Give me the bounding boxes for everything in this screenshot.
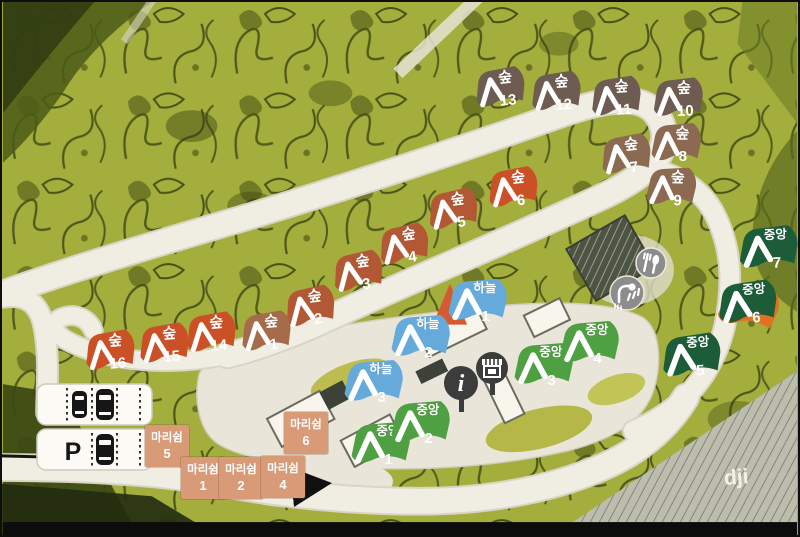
tent-site-forest-12: 숲12	[525, 70, 584, 118]
site-number: 8	[667, 149, 698, 164]
tent-site-forest-13: 숲13	[468, 65, 528, 115]
dji-watermark: dji	[723, 465, 749, 491]
parking-row-top	[37, 384, 152, 425]
tent-site-central-2: 중앙2	[385, 401, 451, 449]
site-zone-label: 숲	[664, 126, 701, 141]
site-number: 12	[548, 96, 580, 113]
car-top-view-icon	[96, 434, 114, 465]
rect-site-mari-2: 마리쉼2	[219, 457, 263, 499]
tent-site-forest-9: 숲9	[640, 166, 698, 212]
site-number: 2	[410, 345, 447, 360]
site-number: 6	[284, 434, 328, 447]
rect-site-mari-4: 마리쉼4	[261, 456, 305, 498]
site-zone-label: 하늘	[359, 363, 403, 376]
tent-site-sky-1: 하늘1	[442, 279, 508, 327]
site-zone-label: 중앙	[753, 228, 797, 242]
site-number: 3	[533, 373, 570, 388]
site-zone-label: 숲	[150, 324, 188, 342]
parking-p-label: P	[65, 438, 82, 466]
tent-site-forest-8: 숲8	[646, 123, 702, 167]
site-number: 4	[579, 351, 616, 366]
tent-site-forest-10: 숲10	[647, 77, 705, 123]
site-number: 14	[203, 337, 236, 355]
tent-site-forest-15: 숲15	[132, 322, 192, 371]
site-zone-label: 숲	[659, 169, 696, 185]
site-number: 1	[370, 452, 407, 467]
tent-site-central-4: 중앙4	[554, 321, 620, 369]
site-zone-label: 숲	[252, 312, 290, 330]
tent-site-forest-1: 숲1	[234, 310, 294, 359]
site-zone-label: 마리쉼	[145, 432, 189, 445]
site-zone-label: 숲	[96, 331, 134, 349]
site-number: 15	[156, 348, 189, 366]
parking-sign: P	[36, 383, 154, 473]
tent-site-central-6: 중앙6	[710, 279, 779, 331]
bottom-frame-strip	[3, 522, 797, 535]
tent-site-forest-5: 숲5	[420, 186, 482, 237]
site-number: 1	[258, 336, 291, 354]
tent-site-sky-2: 하늘2	[385, 315, 451, 363]
parking-row-bottom: P	[37, 429, 152, 470]
site-number: 16	[102, 355, 135, 373]
site-number: 2	[219, 479, 263, 492]
tent-site-forest-3: 숲3	[325, 248, 387, 299]
site-zone-label: 마리쉼	[284, 419, 328, 432]
car-top-view-icon	[72, 391, 87, 418]
site-zone-label: 마리쉼	[219, 464, 263, 477]
facility-cookhouse	[629, 243, 673, 293]
site-zone-label: 숲	[665, 80, 702, 96]
car-top-view-icon	[96, 389, 114, 420]
rect-site-mari-6: 마리쉼6	[284, 412, 328, 454]
site-zone-label: 마리쉼	[261, 463, 305, 476]
site-zone-label: 숲	[603, 78, 641, 96]
site-number: 2	[410, 431, 447, 446]
tent-site-forest-6: 숲6	[481, 165, 541, 215]
tent-site-central-5: 중앙5	[654, 332, 723, 384]
tent-site-forest-11: 숲11	[585, 75, 644, 123]
site-number: 11	[608, 101, 640, 118]
site-number: 4	[261, 478, 305, 491]
site-number: 1	[467, 309, 504, 324]
site-zone-label: 중앙	[575, 324, 619, 337]
tent-site-forest-16: 숲16	[78, 329, 138, 378]
svg-text:i: i	[458, 371, 465, 397]
tent-site-central-7: 중앙7	[732, 225, 800, 275]
site-number: 9	[662, 193, 694, 209]
utensils-icon	[629, 243, 673, 293]
site-zone-label: 숲	[543, 73, 581, 91]
site-number: 10	[669, 103, 701, 119]
site-zone-label: 하늘	[463, 282, 507, 295]
site-number: 7	[758, 255, 795, 271]
campground-map: P 숲13숲12숲11숲10숲8숲7숲9숲6숲5숲4숲3숲2숲1숲14숲15숲1…	[0, 0, 800, 537]
site-number: 5	[681, 362, 719, 380]
site-zone-label: 중앙	[406, 404, 450, 417]
site-number: 6	[737, 309, 775, 327]
site-zone-label: 숲	[197, 313, 235, 331]
site-zone-label: 하늘	[406, 318, 450, 331]
